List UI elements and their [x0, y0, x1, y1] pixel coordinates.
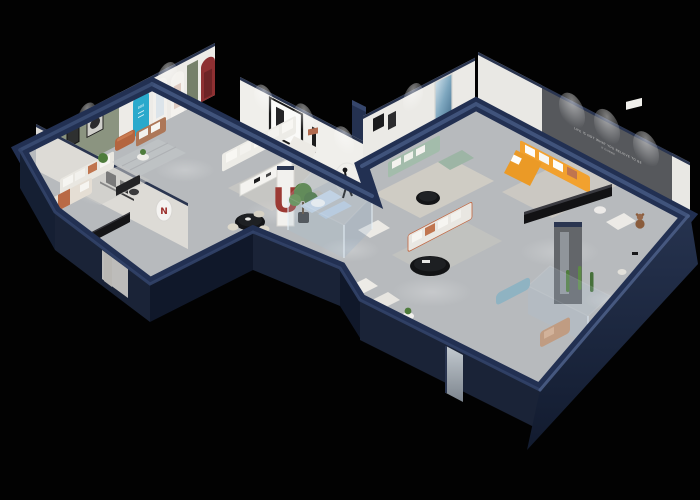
side-table-plant [405, 308, 412, 315]
desk-chair [618, 269, 627, 275]
cream-chair [254, 211, 265, 218]
mirror-door-panel [446, 346, 463, 402]
floor-plant [98, 153, 108, 163]
teddy-bear-figure [635, 213, 644, 228]
oval-logo-panel: N [156, 199, 172, 221]
table-plant [140, 149, 146, 155]
isometric-scene: 888 LIFE IS [0, 0, 700, 500]
desk-chair [129, 189, 139, 195]
cream-chair [228, 223, 239, 230]
white-side-table [594, 206, 606, 214]
floorplan-render: 888 LIFE IS [0, 0, 700, 500]
logo-mark-letter: N [160, 207, 168, 217]
